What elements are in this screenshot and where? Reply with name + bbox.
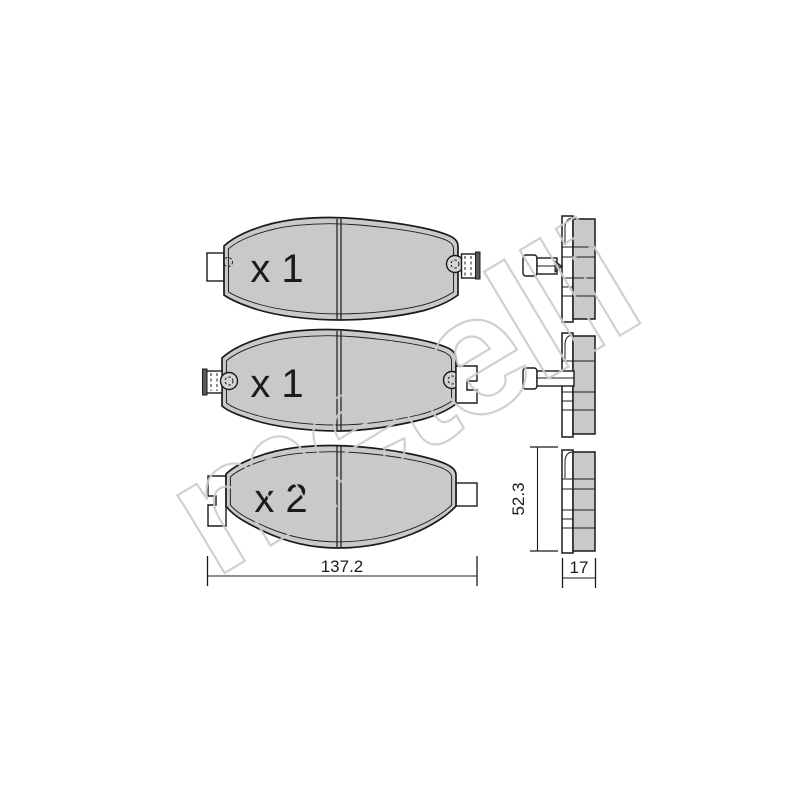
quantity-label-1: x 1 (250, 247, 303, 291)
dimension-height-ticks (530, 447, 558, 551)
dimension-height: 52.3 (509, 447, 558, 551)
drawing-canvas: x 1 x 1 (0, 0, 800, 800)
pad2-clip-cap (203, 369, 208, 395)
sv3-backplate (562, 450, 573, 553)
pad1-left-ear (207, 253, 224, 281)
pad2-clip (206, 371, 222, 393)
technical-drawing: x 1 x 1 (0, 0, 800, 800)
dimension-thickness-value: 17 (570, 558, 589, 577)
sv3-friction (573, 452, 595, 551)
side-view-3 (562, 450, 595, 553)
dimension-thickness: 17 (563, 558, 596, 588)
dimension-width-value: 137.2 (321, 557, 364, 576)
dimension-height-value: 52.3 (509, 482, 528, 515)
pad3-right-tab (456, 483, 477, 506)
